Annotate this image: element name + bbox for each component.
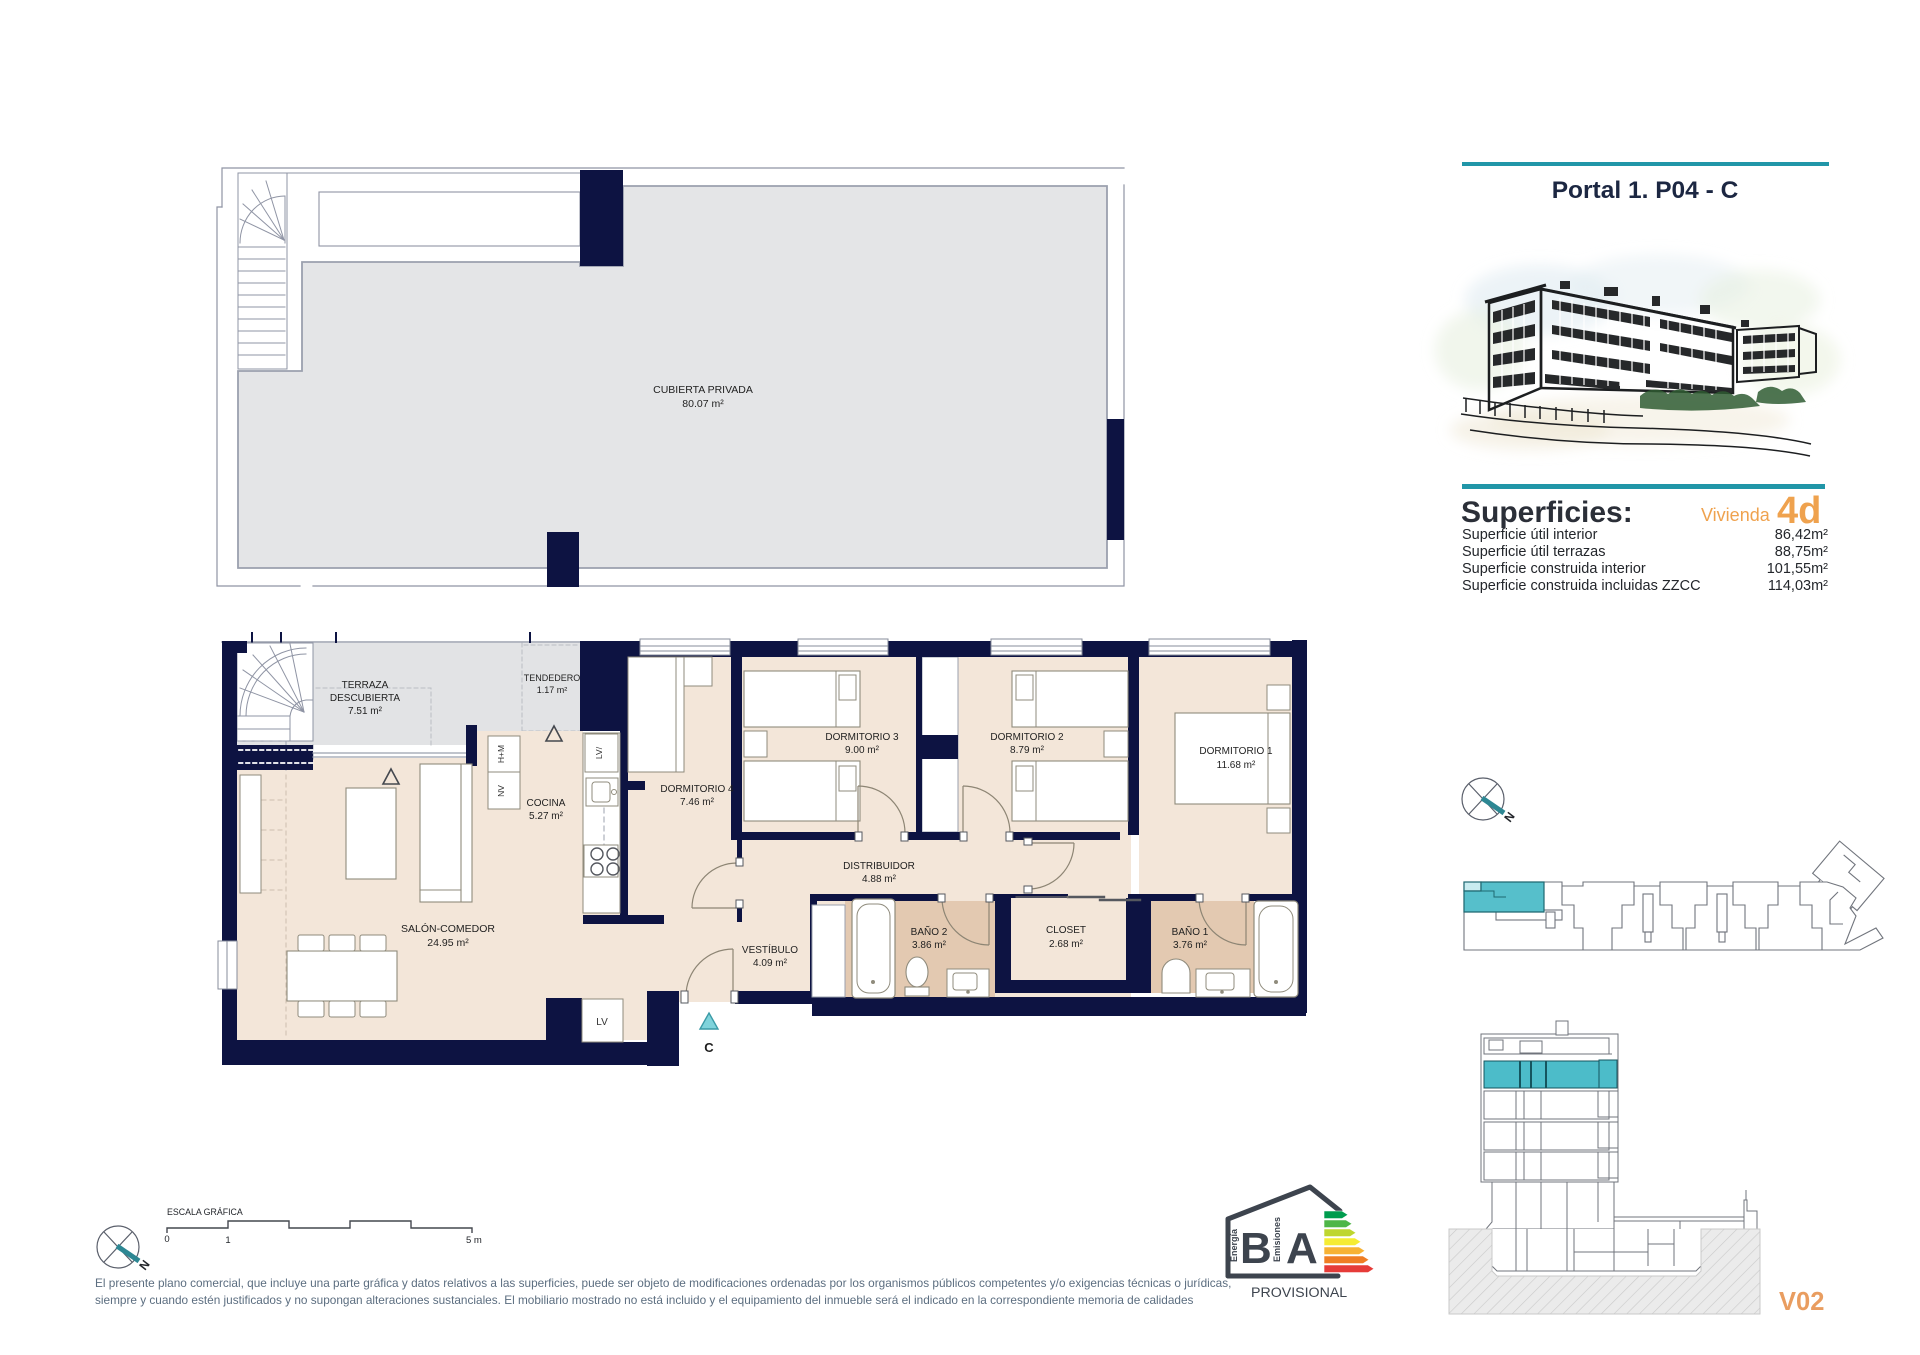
svg-text:1.17 m²: 1.17 m² [537, 685, 568, 695]
svg-text:N: N [1501, 809, 1517, 824]
svg-text:4.88 m²: 4.88 m² [862, 874, 897, 885]
svg-text:Energía: Energía [1229, 1228, 1239, 1262]
svg-text:Superficies:: Superficies: [1461, 496, 1633, 529]
svg-text:7.51 m²: 7.51 m² [348, 706, 383, 717]
svg-text:El presente plano comercial, q: El presente plano comercial, que incluye… [95, 1276, 1231, 1290]
svg-text:4.09 m²: 4.09 m² [753, 958, 788, 969]
svg-text:3.76 m²: 3.76 m² [1173, 940, 1208, 951]
svg-text:DISTRIBUIDOR: DISTRIBUIDOR [843, 861, 915, 872]
svg-text:C: C [704, 1040, 714, 1055]
svg-text:0: 0 [164, 1234, 169, 1245]
svg-text:11.68 m²: 11.68 m² [1217, 760, 1256, 771]
svg-text:V02: V02 [1779, 1288, 1824, 1316]
svg-text:DORMITORIO 3: DORMITORIO 3 [825, 732, 899, 743]
svg-text:CUBIERTA PRIVADA: CUBIERTA PRIVADA [653, 384, 753, 396]
svg-text:ESCALA GRÁFICA: ESCALA GRÁFICA [167, 1207, 243, 1217]
svg-text:Superficie construida interior: Superficie construida interior [1462, 561, 1646, 577]
svg-text:LV/: LV/ [594, 746, 604, 759]
svg-text:2.68 m²: 2.68 m² [1049, 939, 1084, 950]
svg-text:TENDEDERO: TENDEDERO [524, 673, 581, 683]
svg-text:5 m: 5 m [466, 1235, 482, 1246]
svg-text:101,55m²: 101,55m² [1767, 561, 1828, 577]
svg-text:BAÑO 2: BAÑO 2 [911, 925, 948, 938]
svg-text:CLOSET: CLOSET [1046, 925, 1086, 936]
svg-text:4d: 4d [1777, 490, 1821, 532]
svg-text:88,75m²: 88,75m² [1775, 544, 1828, 560]
svg-text:B: B [1240, 1224, 1272, 1273]
svg-text:BAÑO 1: BAÑO 1 [1172, 925, 1209, 938]
svg-text:COCINA: COCINA [527, 798, 566, 809]
svg-text:9.00 m²: 9.00 m² [845, 745, 880, 756]
svg-text:24.95 m²: 24.95 m² [427, 937, 469, 949]
svg-text:8.79 m²: 8.79 m² [1010, 745, 1045, 756]
svg-text:DORMITORIO 1: DORMITORIO 1 [1199, 746, 1273, 757]
svg-text:TERRAZA: TERRAZA [342, 680, 389, 691]
svg-text:A: A [1286, 1224, 1318, 1273]
svg-text:7.46 m²: 7.46 m² [680, 797, 715, 808]
svg-text:1: 1 [225, 1235, 230, 1246]
svg-text:N: N [136, 1257, 152, 1272]
svg-text:PROVISIONAL: PROVISIONAL [1251, 1285, 1347, 1301]
svg-text:80.07 m²: 80.07 m² [682, 398, 724, 410]
svg-text:DORMITORIO 2: DORMITORIO 2 [990, 732, 1064, 743]
svg-text:Vivienda: Vivienda [1701, 505, 1771, 525]
svg-text:NV: NV [496, 785, 506, 797]
svg-text:Superficie útil terrazas: Superficie útil terrazas [1462, 544, 1605, 560]
svg-text:DORMITORIO 4: DORMITORIO 4 [660, 784, 734, 795]
svg-text:Portal 1. P04 - C: Portal 1. P04 - C [1552, 177, 1739, 204]
svg-text:DESCUBIERTA: DESCUBIERTA [330, 693, 401, 704]
svg-text:Emisiones: Emisiones [1272, 1217, 1282, 1262]
svg-text:3.86 m²: 3.86 m² [912, 940, 947, 951]
svg-text:SALÓN-COMEDOR: SALÓN-COMEDOR [401, 922, 495, 935]
svg-text:86,42m²: 86,42m² [1775, 527, 1828, 543]
svg-text:Superficie útil interior: Superficie útil interior [1462, 527, 1598, 543]
svg-text:LV: LV [596, 1017, 608, 1028]
svg-text:114,03m²: 114,03m² [1768, 578, 1828, 594]
svg-text:siempre y cuando estén justifi: siempre y cuando estén justificados y no… [95, 1293, 1194, 1307]
svg-text:H+M: H+M [496, 745, 506, 763]
svg-text:Superficie construida incluida: Superficie construida incluidas ZZCC [1462, 578, 1701, 594]
svg-text:5.27 m²: 5.27 m² [529, 811, 564, 822]
svg-text:VESTÍBULO: VESTÍBULO [742, 943, 798, 956]
